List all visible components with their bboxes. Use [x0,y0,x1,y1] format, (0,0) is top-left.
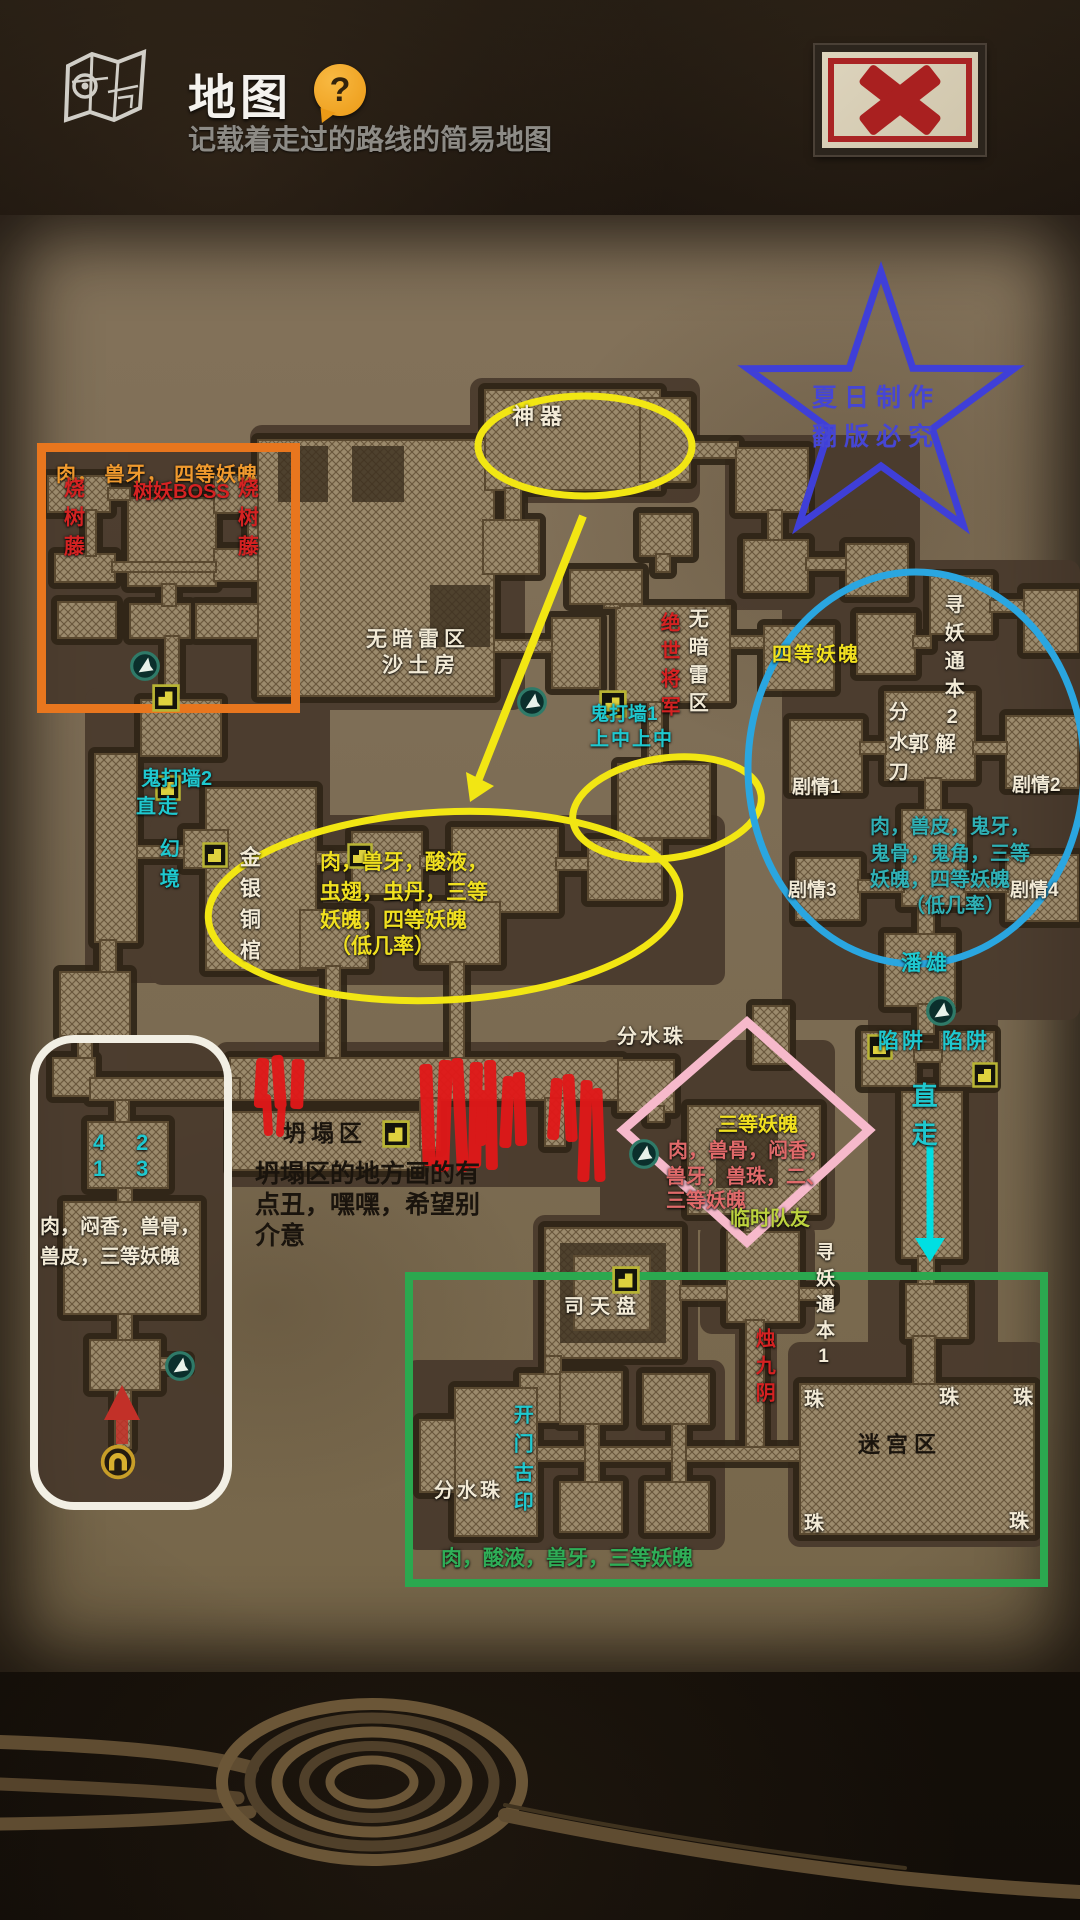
circle-drops-line3: 妖魄，四等妖魄 [870,869,1010,892]
temp-ally-label: 临时队友 [730,1208,810,1231]
help-glyph: ? [330,71,351,110]
water-pearl-top-label: 分水珠 [617,1026,686,1049]
trap-left-label: 陷阱 [878,1030,926,1054]
tree-boss-label: 树妖BOSS [133,481,230,504]
plot3-label: 剧情3 [788,880,837,902]
watermark-line2: 翻版必究 [812,423,940,452]
ghost-wall1-hint: 上中上中 [590,729,674,751]
trap-right-label: 陷阱 [942,1030,990,1054]
ghost-wall2-label: 鬼打墙2 [141,768,212,791]
pan-xiong-label: 潘雄 [901,952,951,976]
tier4-soul-label: 四等妖魄 [772,644,860,667]
diamond-tier-label: 三等妖魄 [718,1114,798,1137]
circle-drops-line1: 肉，兽皮，鬼牙， [870,816,1030,839]
page-subtitle: 记载着走过的路线的简易地图 [188,118,552,158]
go-straight-left-label: 直走 [136,796,180,819]
go-straight-right-label: 直走 [908,1082,938,1158]
room-number-2: 2 [136,1130,148,1156]
ellipse-drops-line1: 肉，兽牙，酸液， [320,851,488,875]
close-button[interactable] [815,45,985,155]
room-number-1: 1 [93,1156,105,1182]
pearl-label: 珠 [804,1513,824,1536]
plot2-label: 剧情2 [1012,775,1061,797]
coffin-label: 金银铜棺 [236,846,260,970]
sand-room-line2: 沙土房 [382,654,460,678]
burn-vine-left: 烧树藤 [60,477,84,564]
collapse-area-label: 坍塌区 [283,1120,367,1147]
circle-drops-line4: （低几率） [905,895,1005,918]
map-icon [58,42,154,143]
door-seal-label: 开门古印 [509,1404,532,1520]
peerless-general-label: 绝世将军 [656,612,679,724]
burn-vine-right: 烧树藤 [234,477,258,564]
ellipse-drops-line3: 妖魄，四等妖魄 [320,909,467,933]
green-box-drops: 肉，酸液，兽牙，三等妖魄 [441,1547,693,1571]
circle-drops-line2: 鬼骨，鬼角，三等 [870,843,1030,866]
pearl-label: 珠 [1013,1387,1033,1410]
ellipse-drops-line4: （低几率） [330,935,435,959]
help-icon[interactable]: ? [314,64,366,116]
demon-quest1-label: 寻妖通本1 [812,1242,834,1374]
pearl-label: 珠 [939,1387,959,1410]
zhu-jiu-yin-label: 烛九阴 [751,1328,774,1409]
map-screen: 肉， 兽牙， 四等妖魄 树妖BOSS 烧树藤 烧树藤 神器 无暗雷区 沙土房 绝… [0,0,1080,1920]
water-knife-label: 分水刀 [884,701,907,791]
sand-room-line1: 无暗雷区 [366,628,470,652]
collapse-note-line1: 坍塌区的地方画的有 [255,1160,480,1189]
water-pearl-bottom-label: 分水珠 [434,1480,503,1503]
ghost-wall1-label: 鬼打墙1 [590,704,658,726]
ellipse-drops-line2: 虫翅，虫丹，三等 [320,881,488,905]
white-box-drops-line2: 兽皮，三等妖魄 [40,1246,180,1269]
guo-jie-label: 郭解 [908,733,962,757]
no-mine-area-label: 无暗雷区 [684,608,707,720]
artifact-label: 神器 [512,404,568,430]
si-tian-pan-label: 司天盘 [564,1296,642,1319]
pearl-label: 珠 [804,1389,824,1412]
collapse-note-line3: 介意 [255,1222,305,1251]
room-number-3: 3 [136,1156,148,1182]
white-box-drops-line1: 肉，闷香，兽骨， [40,1216,200,1239]
room-number-4: 4 [93,1130,105,1156]
illusion-label: 幻境 [155,838,178,898]
diamond-drops-line2: 兽牙，兽珠，二、 [666,1166,826,1189]
plot4-label: 剧情4 [1010,880,1059,902]
watermark-line1: 夏日制作 [812,384,940,413]
rope-decoration [0,1704,1080,1892]
maze-area-label: 迷宫区 [858,1432,942,1458]
demon-quest2-label: 寻妖通本2 [940,594,963,736]
diamond-drops-line1: 肉，兽骨，闷香， [668,1140,828,1163]
plot1-label: 剧情1 [792,777,841,799]
collapse-note-line2: 点丑，嘿嘿，希望别 [255,1191,480,1220]
pearl-label: 珠 [1009,1511,1029,1534]
